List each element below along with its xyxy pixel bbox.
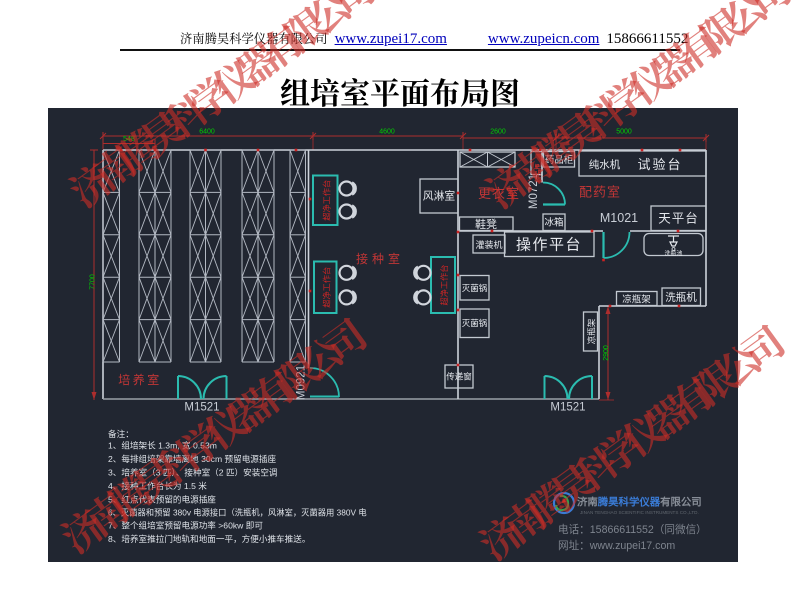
svg-text:M0921: M0921 — [296, 365, 308, 400]
svg-text:试验台: 试验台 — [637, 154, 682, 173]
svg-text:灭菌锅: 灭菌锅 — [462, 282, 488, 294]
svg-text:6、灭菌器和预留 380v 电源接口（洗瓶机，风淋室，灭菌器: 6、灭菌器和预留 380v 电源接口（洗瓶机，风淋室，灭菌器用 380V 电 — [108, 507, 367, 519]
svg-text:纯水机: 纯水机 — [589, 157, 621, 172]
svg-text:风淋室: 风淋室 — [423, 188, 456, 204]
svg-text:M1021: M1021 — [600, 211, 638, 225]
svg-text:8、培养室推拉门地轨和地面一平，方便小推车推送。: 8、培养室推拉门地轨和地面一平，方便小推车推送。 — [108, 533, 310, 545]
svg-text:药品柜: 药品柜 — [532, 163, 542, 183]
svg-text:2900: 2900 — [601, 345, 611, 361]
svg-text:培养室: 培养室 — [118, 371, 162, 388]
svg-text:天平台: 天平台 — [658, 208, 699, 227]
svg-text:鞋凳: 鞋凳 — [475, 216, 497, 232]
svg-text:2、每排组培架靠墙离地 30cm 预留电源插座: 2、每排组培架靠墙离地 30cm 预留电源插座 — [108, 453, 276, 465]
svg-text:药品柜: 药品柜 — [545, 152, 574, 166]
svg-text:操作平台: 操作平台 — [516, 234, 582, 255]
svg-text:灌装机: 灌装机 — [475, 238, 502, 251]
svg-text:JINAN TENGHAO SCIENTIFIC INSTR: JINAN TENGHAO SCIENTIFIC INSTRUMENTS CO.… — [580, 510, 699, 515]
svg-text:电话：15866611552（同微信）: 电话：15866611552（同微信） — [558, 522, 707, 537]
svg-text:凉瓶架: 凉瓶架 — [622, 292, 651, 306]
svg-text:548: 548 — [123, 134, 135, 144]
svg-text:接种室: 接种室 — [356, 250, 404, 267]
svg-text:3、培养室（3 匹）、接种室（2 匹）安装空调: 3、培养室（3 匹）、接种室（2 匹）安装空调 — [108, 467, 278, 479]
svg-text:更衣室: 更衣室 — [478, 183, 520, 202]
svg-text:灭菌锅: 灭菌锅 — [462, 317, 488, 329]
svg-text:7700: 7700 — [88, 274, 98, 290]
svg-text:M1521: M1521 — [184, 402, 219, 414]
svg-text:7、整个组培室预留电源功率 >60kw 即可: 7、整个组培室预留电源功率 >60kw 即可 — [108, 520, 263, 532]
svg-text:济南腾昊科学仪器有限公司: 济南腾昊科学仪器有限公司 — [577, 494, 702, 509]
svg-text:配药室: 配药室 — [579, 182, 621, 201]
svg-text:传递窗: 传递窗 — [446, 371, 472, 383]
svg-text:超净工作台: 超净工作台 — [438, 265, 450, 306]
svg-text:超净工作台: 超净工作台 — [320, 267, 332, 308]
svg-text:网址：www.zupei17.com: 网址：www.zupei17.com — [558, 538, 675, 553]
svg-text:1、组培架长 1.3m, 宽 0.53m: 1、组培架长 1.3m, 宽 0.53m — [108, 440, 217, 452]
svg-text:洗瓶机: 洗瓶机 — [665, 290, 697, 305]
svg-text:备注：: 备注： — [108, 428, 134, 440]
svg-text:超净工作台: 超净工作台 — [320, 180, 332, 221]
svg-text:6400: 6400 — [199, 127, 215, 137]
svg-text:洗瓶池: 洗瓶池 — [664, 249, 682, 258]
svg-text:冰箱: 冰箱 — [544, 215, 563, 229]
svg-text:凉瓶架: 凉瓶架 — [586, 318, 598, 344]
svg-text:5、红点代表预留的电源插座: 5、红点代表预留的电源插座 — [108, 494, 216, 506]
svg-text:M1521: M1521 — [550, 402, 585, 414]
svg-text:2600: 2600 — [490, 127, 506, 137]
svg-text:5000: 5000 — [616, 127, 632, 137]
svg-text:4600: 4600 — [379, 127, 395, 137]
svg-text:4、接种工作台长为 1.5 米: 4、接种工作台长为 1.5 米 — [108, 480, 207, 492]
